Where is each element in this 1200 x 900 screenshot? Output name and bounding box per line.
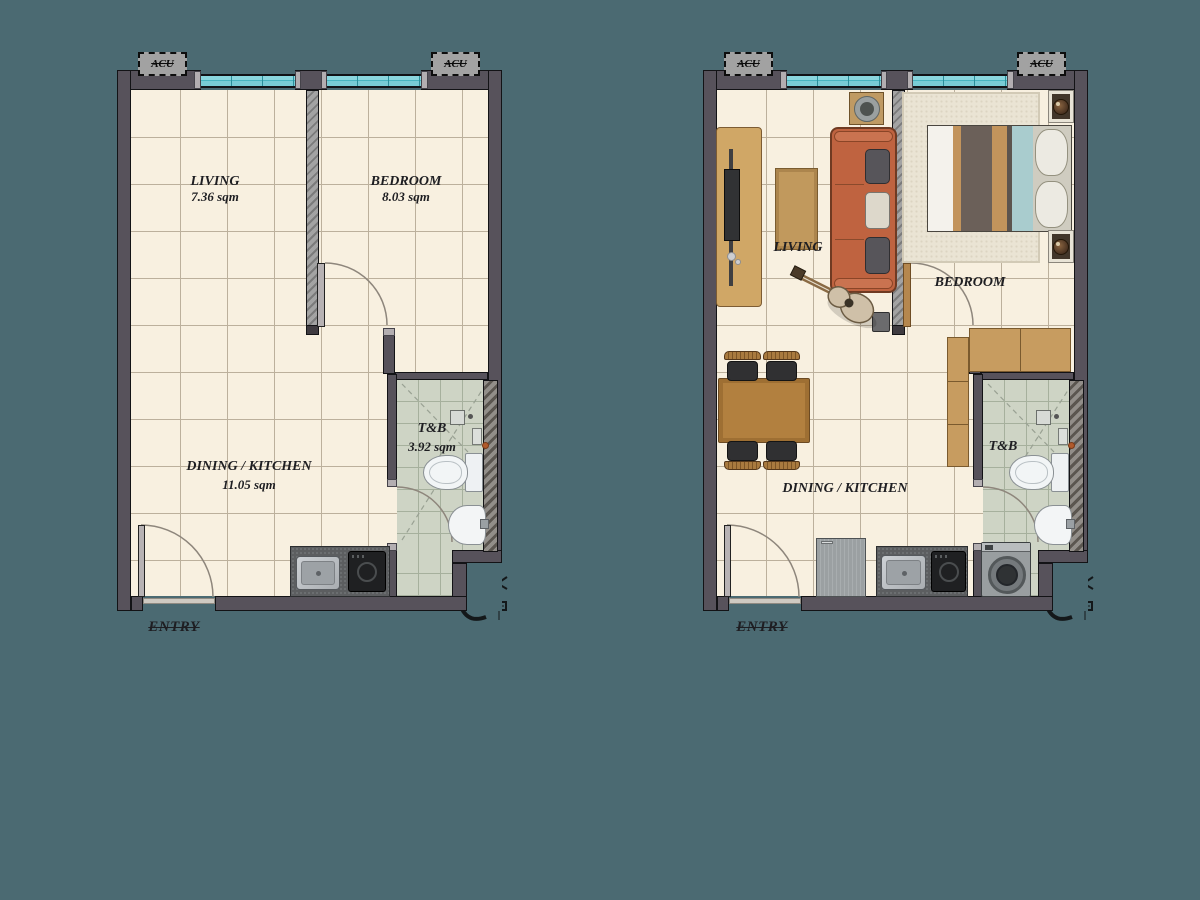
dining-kitchen-area-label: 11.05 sqm	[222, 477, 275, 493]
dining-kitchen-label: DINING / KITCHEN	[186, 459, 311, 475]
guitar-layer	[0, 0, 1200, 900]
bedroom-label: BEDROOM	[371, 174, 442, 190]
toilet-bath-area-label: 3.92 sqm	[408, 439, 456, 455]
dining-kitchen-label: DINING / KITCHEN	[782, 481, 907, 497]
living-area-label: 7.36 sqm	[191, 189, 239, 205]
living-label: LIVING	[190, 174, 239, 190]
toilet-bath-label: T&B	[418, 421, 447, 437]
toilet-bath-label: T&B	[989, 439, 1018, 455]
entry-label: ENTRY	[148, 619, 199, 636]
bedroom-area-label: 8.03 sqm	[382, 189, 430, 205]
guitar	[790, 266, 880, 334]
bedroom-label: BEDROOM	[935, 275, 1006, 291]
guitar-soundhole	[845, 299, 854, 308]
living-label: LIVING	[773, 240, 822, 256]
entry-label: ENTRY	[736, 619, 787, 636]
